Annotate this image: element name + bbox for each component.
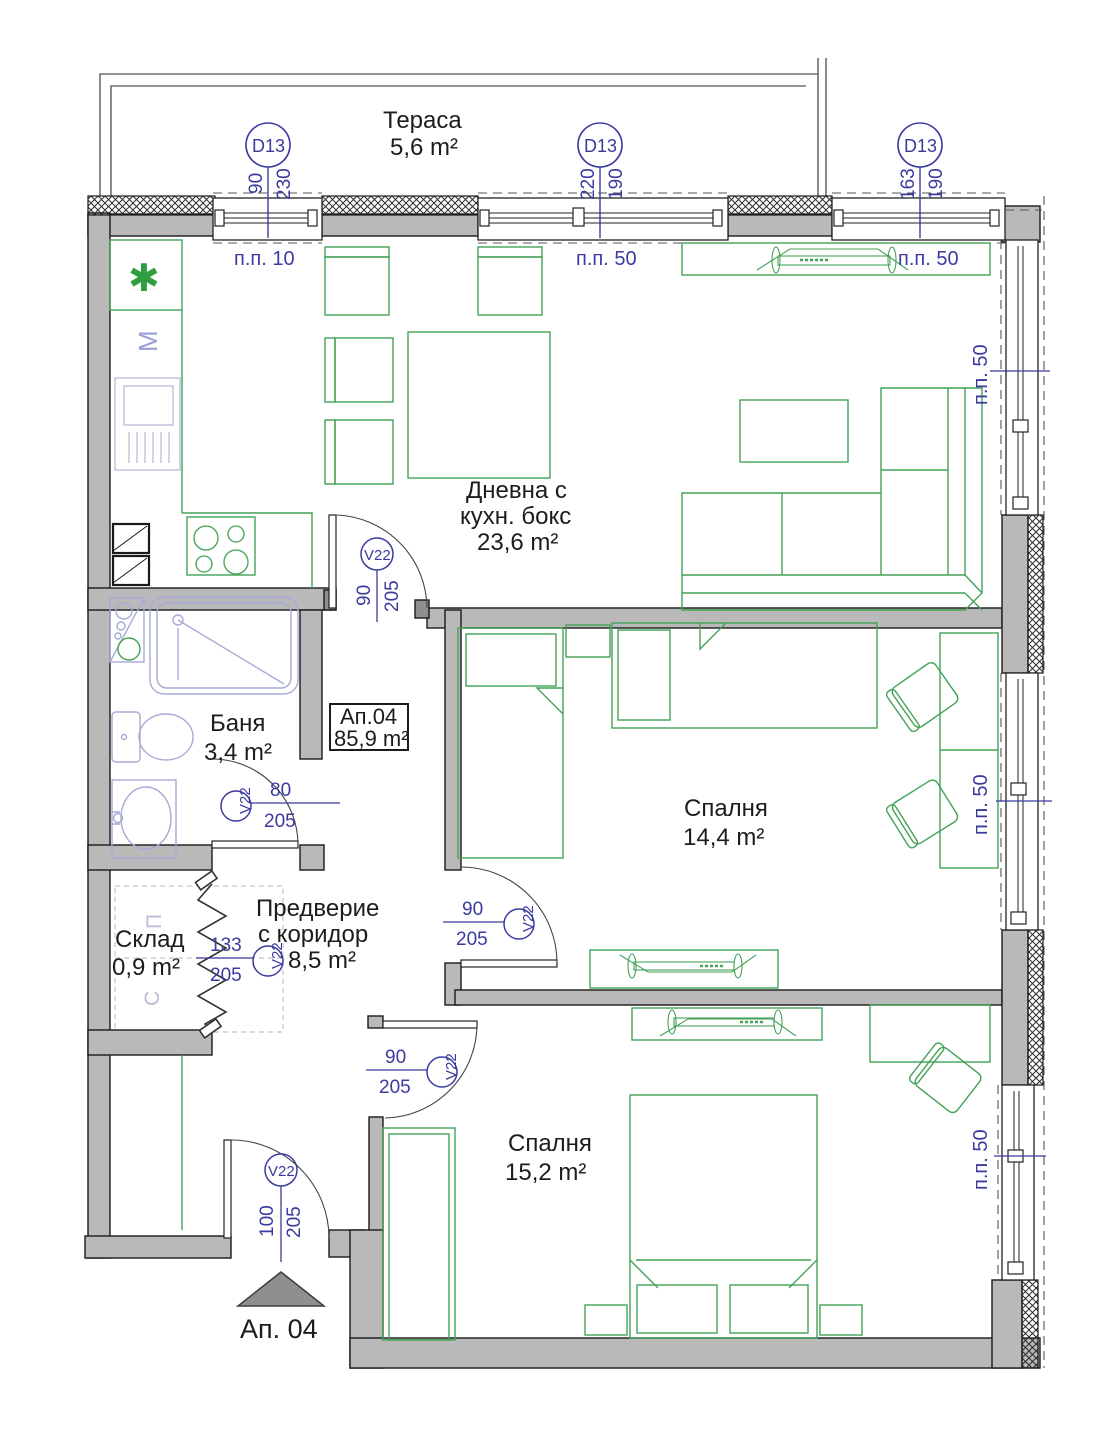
storage-letter-bottom: С (141, 991, 164, 1006)
door-height: 205 (456, 929, 488, 950)
window-height: 230 (274, 168, 295, 200)
wardrobe (383, 1128, 455, 1340)
window-marker-3: D13 163 190 п.п. 50 (898, 123, 959, 270)
door-marker-bedroom1: V22 90 205 (443, 899, 537, 950)
door-width: 133 (210, 935, 242, 956)
apartment-area: 85,9 m² (334, 726, 409, 751)
single-bed-vertical (458, 628, 563, 858)
tv-console-bedroom2 (632, 1008, 822, 1040)
desk-bedroom2 (870, 1005, 990, 1062)
window-marker-id: D13 (252, 136, 285, 156)
window-marker-id: D13 (904, 136, 937, 156)
terrace-outline (100, 58, 826, 196)
door-width: 90 (385, 1047, 406, 1068)
desk-chair (908, 1041, 983, 1115)
door-height: 205 (382, 580, 403, 612)
sill-label: п.п. 50 (576, 248, 637, 270)
apartment-box: Ап.04 85,9 m² (330, 704, 409, 751)
floor-plan-page: ✱ М (0, 0, 1093, 1440)
storage-area: 0,9 m² (112, 954, 180, 981)
floor-plan-drawing: ✱ М (0, 0, 1093, 1440)
door-marker-id: V22 (443, 1053, 460, 1080)
window-marker-1: D13 90 230 п.п. 10 (234, 123, 295, 270)
door-height: 205 (210, 965, 242, 986)
toilet (112, 712, 193, 762)
sofa-corner (682, 388, 982, 610)
door-height: 205 (379, 1077, 411, 1098)
single-bed-horizontal (612, 623, 877, 728)
nightstand (566, 625, 610, 657)
bath-area: 3,4 m² (204, 739, 272, 766)
sill-label: п.п. 50 (970, 1129, 992, 1190)
door-marker-id: V22 (237, 787, 254, 814)
terrace-name: Тераса (383, 107, 462, 134)
living-name-1: Дневна с (466, 477, 567, 504)
dining-chair (478, 247, 542, 315)
sill-label: п.п. 50 (898, 248, 959, 270)
living-name-2: кухн. бокс (460, 503, 571, 530)
bath-name: Баня (210, 710, 265, 737)
window-width: 220 (578, 168, 599, 200)
window-marker-id: D13 (584, 136, 617, 156)
dining-chair (325, 338, 393, 402)
living-area: 23,6 m² (477, 529, 558, 556)
nightstand (585, 1305, 627, 1335)
door-width: 80 (270, 780, 291, 801)
tv-console-bedroom1 (590, 950, 778, 988)
hall-name-2: с коридор (258, 921, 368, 948)
bedroom2-area: 15,2 m² (505, 1159, 586, 1186)
door-marker-bath: V22 80 205 (221, 780, 340, 832)
door-marker-bedroom2: V22 90 205 (366, 1047, 460, 1098)
double-bed (630, 1095, 817, 1338)
sill-label: п.п. 10 (234, 248, 295, 270)
door-width: 90 (462, 899, 483, 920)
door-marker-entrance: V22 100 205 (257, 1154, 305, 1262)
hall-area: 8,5 m² (288, 947, 356, 974)
window-height: 190 (926, 168, 947, 200)
door-marker-id: V22 (268, 1163, 295, 1180)
dining-chair (325, 247, 389, 315)
bedroom2-name: Спалня (508, 1130, 592, 1157)
desk-chair (885, 660, 960, 733)
sill-label: п.п. 50 (970, 774, 992, 835)
hall-name-1: Предверие (256, 895, 379, 922)
entrance-apartment-label: Ап. 04 (240, 1314, 318, 1344)
nightstand (820, 1305, 862, 1335)
door-marker-id: V22 (520, 905, 537, 932)
door-marker-id: V22 (364, 547, 391, 564)
window-marker-2: D13 220 190 п.п. 50 (576, 123, 637, 270)
washing-machine-letter: М (133, 330, 163, 352)
right-windows (998, 196, 1044, 1368)
door-height: 205 (284, 1206, 305, 1238)
door-width: 90 (354, 585, 375, 606)
coffee-table (740, 400, 848, 462)
storage-name: Склад (115, 926, 184, 953)
desk-chair (885, 778, 960, 849)
bedroom1-area: 14,4 m² (683, 824, 764, 851)
bedroom2-furniture (383, 1005, 990, 1340)
kitchen-asterisk: ✱ (128, 258, 160, 300)
dining-chair (325, 420, 393, 484)
shower-tray (150, 597, 298, 694)
bedroom1-name: Спалня (684, 795, 768, 822)
window-height: 190 (606, 168, 627, 200)
sill-label: п.п. 50 (970, 344, 992, 405)
door-height: 205 (264, 811, 296, 832)
terrace-area: 5,6 m² (390, 134, 458, 161)
door-marker-living: V22 90 205 (354, 538, 403, 622)
window-width: 90 (246, 173, 267, 194)
window-width: 163 (898, 168, 919, 200)
dining-set (325, 247, 550, 484)
door-width: 100 (257, 1205, 278, 1237)
entrance-marker: Ап. 04 (238, 1272, 324, 1344)
entrance-arrow (238, 1272, 324, 1306)
